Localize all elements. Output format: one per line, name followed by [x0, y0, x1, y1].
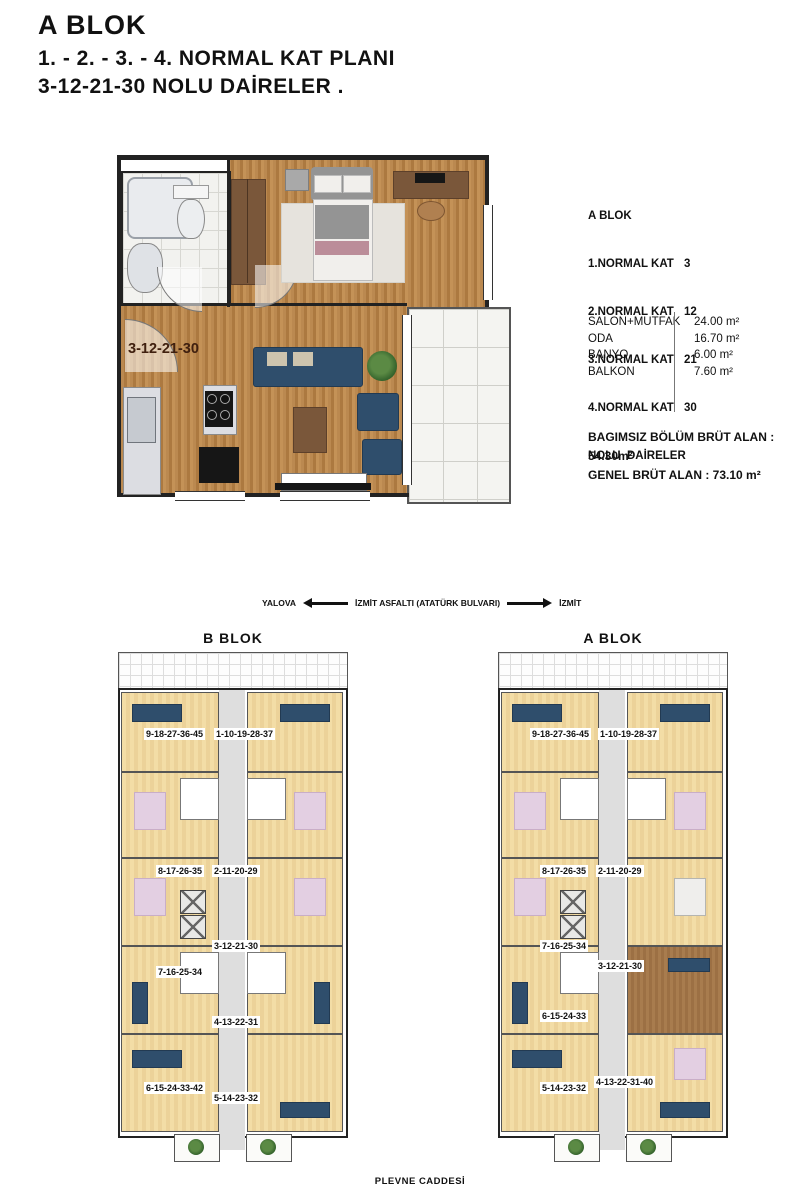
coffee-table: [293, 407, 327, 453]
elevator-icon: [180, 890, 206, 914]
sofa-cushion: [267, 352, 287, 366]
nightstand: [285, 169, 309, 191]
sofa: [280, 704, 330, 722]
gross-independent: BAGIMSIZ BÖLÜM BRÜT ALAN : 54.30m²: [588, 428, 805, 466]
unit-label: 8-17-26-35: [540, 865, 588, 877]
direction-right-city: İZMİT: [559, 598, 581, 608]
kitchen-window: [175, 491, 245, 501]
area-row: BALKON 7.60 m²: [588, 364, 739, 381]
unit-label: 2-11-20-29: [596, 865, 644, 877]
unit-label: 7-16-25-34: [540, 940, 588, 952]
plant-icon: [260, 1139, 276, 1155]
sofa: [132, 1050, 182, 1068]
unit-label: 3-12-21-30: [596, 960, 644, 972]
terrace: [498, 652, 728, 690]
area-value: 24.00 m²: [694, 314, 739, 331]
plant-icon: [188, 1139, 204, 1155]
desk-chair: [417, 201, 445, 221]
floor-label: 4.NORMAL KAT: [588, 400, 684, 416]
sofa: [512, 982, 528, 1024]
terrace: [118, 652, 348, 690]
unit-label: 9-18-27-36-45: [530, 728, 591, 740]
bed: [134, 792, 166, 830]
unit-label: 2-11-20-29: [212, 865, 260, 877]
page-title: A BLOK 1. - 2. - 3. - 4. NORMAL KAT PLAN…: [38, 10, 395, 99]
area-name: BALKON: [588, 364, 672, 381]
bathroom: [560, 952, 599, 994]
kitchen-sink: [127, 397, 156, 443]
oven: [199, 447, 239, 483]
sofa: [660, 1102, 710, 1118]
bed: [134, 878, 166, 916]
area-row: BANYO 6.00 m²: [588, 347, 739, 364]
burner-icon: [220, 410, 230, 420]
unit-label: 5-14-23-32: [212, 1092, 260, 1104]
unit-label: 1-10-19-28-37: [214, 728, 275, 740]
bedroom-window: [483, 205, 493, 300]
unit-label: 9-18-27-36-45: [144, 728, 205, 740]
bed-duvet-gray: [315, 205, 369, 239]
floor-label: 1.NORMAL KAT: [588, 256, 684, 272]
wardrobe-divider: [247, 179, 248, 283]
bed: [674, 878, 706, 916]
arrow-right-icon: [507, 598, 552, 608]
area-value: 16.70 m²: [694, 331, 739, 348]
living-window: [280, 491, 370, 501]
bed: [514, 792, 546, 830]
plant-icon: [568, 1139, 584, 1155]
detail-floor-plan: 3-12-21-30: [115, 155, 513, 507]
burner-icon: [220, 394, 230, 404]
elevator-icon: [560, 890, 586, 914]
sofa: [512, 704, 562, 722]
area-table: SALON+MUTFAK 24.00 m² ODA 16.70 m² BANYO…: [588, 314, 739, 380]
plant-icon: [640, 1139, 656, 1155]
elevator-icon: [180, 915, 206, 939]
bathroom: [560, 778, 599, 820]
street-direction-row: YALOVA İZMİT ASFALTI (ATATÜRK BULVARI) İ…: [262, 598, 581, 608]
unit-label: 4-13-22-31-40: [594, 1076, 655, 1088]
sofa: [660, 704, 710, 722]
detail-unit-label: 3-12-21-30: [128, 341, 199, 357]
bathroom: [180, 778, 219, 820]
sofa-cushion: [293, 352, 313, 366]
info-floor-row: 1.NORMAL KAT 3: [588, 256, 697, 272]
balcony-door-window: [402, 315, 412, 485]
area-row: SALON+MUTFAK 24.00 m²: [588, 314, 739, 331]
desk-monitor: [415, 173, 445, 183]
balcony-floor: [407, 307, 511, 504]
unit-label: 4-13-22-31: [212, 1016, 260, 1028]
unit-label: 5-14-23-32: [540, 1082, 588, 1094]
floor-value: 3: [684, 256, 690, 272]
direction-road: İZMİT ASFALTI (ATATÜRK BULVARI): [355, 598, 500, 608]
wall-hall-bedroom: [227, 160, 230, 307]
armchair-1: [357, 393, 399, 431]
bed: [674, 792, 706, 830]
wall-top: [117, 155, 489, 160]
tv: [275, 483, 371, 490]
toilet: [177, 199, 205, 239]
area-name: SALON+MUTFAK: [588, 314, 672, 331]
area-value: 6.00 m²: [694, 347, 733, 364]
wall-left: [117, 155, 121, 497]
arrow-left-icon: [303, 598, 348, 608]
floor-plan-sheet: A BLOK 1. - 2. - 3. - 4. NORMAL KAT PLAN…: [0, 0, 805, 1200]
armchair-2: [362, 439, 402, 475]
unit-label: 3-12-21-30: [212, 940, 260, 952]
pillow-right: [343, 175, 371, 193]
info-floor-row: 4.NORMAL KAT 30: [588, 400, 697, 416]
unit-label: 6-15-24-33: [540, 1010, 588, 1022]
pillow-left: [314, 175, 342, 193]
bed: [294, 792, 326, 830]
area-name: BANYO: [588, 347, 672, 364]
unit-label: 1-10-19-28-37: [598, 728, 659, 740]
b-blok-title: B BLOK: [118, 630, 348, 646]
floor-value: 30: [684, 400, 697, 416]
sofa: [132, 704, 182, 722]
corridor: [219, 690, 245, 1150]
gross-area-block: BAGIMSIZ BÖLÜM BRÜT ALAN : 54.30m² GENEL…: [588, 428, 805, 485]
title-floors: 1. - 2. - 3. - 4. NORMAL KAT PLANI: [38, 47, 395, 71]
title-block: A BLOK: [38, 10, 395, 41]
sofa: [668, 958, 710, 972]
street-label: PLEVNE CADDESİ: [300, 1176, 540, 1187]
sofa: [512, 1050, 562, 1068]
direction-left-city: YALOVA: [262, 598, 296, 608]
burner-icon: [207, 394, 217, 404]
sofa: [280, 1102, 330, 1118]
burner-icon: [207, 410, 217, 420]
cistern: [173, 185, 209, 199]
title-units: 3-12-21-30 NOLU DAİRELER .: [38, 75, 395, 99]
plant-icon: [367, 351, 397, 381]
area-value: 7.60 m²: [694, 364, 733, 381]
unit-label: 7-16-25-34: [156, 966, 204, 978]
bathroom: [627, 778, 666, 820]
gross-general: GENEL BRÜT ALAN : 73.10 m²: [588, 466, 805, 485]
unit-label: 8-17-26-35: [156, 865, 204, 877]
elevator-icon: [560, 915, 586, 939]
bed: [514, 878, 546, 916]
sofa: [132, 982, 148, 1024]
bed-throw-pink: [315, 241, 369, 255]
a-blok-plan: 9-18-27-36-45 1-10-19-28-37 8-17-26-35 2…: [498, 652, 728, 1168]
area-row: ODA 16.70 m²: [588, 331, 739, 348]
bed: [674, 1048, 706, 1080]
a-blok-title: A BLOK: [498, 630, 728, 646]
bathroom: [247, 778, 286, 820]
area-table-divider: [674, 312, 675, 412]
area-name: ODA: [588, 331, 672, 348]
unit-label: 6-15-24-33-42: [144, 1082, 205, 1094]
b-blok-plan: 9-18-27-36-45 1-10-19-28-37 8-17-26-35 2…: [118, 652, 348, 1168]
bed: [294, 878, 326, 916]
sofa: [314, 982, 330, 1024]
info-block-title: A BLOK: [588, 208, 697, 224]
bathroom: [247, 952, 286, 994]
